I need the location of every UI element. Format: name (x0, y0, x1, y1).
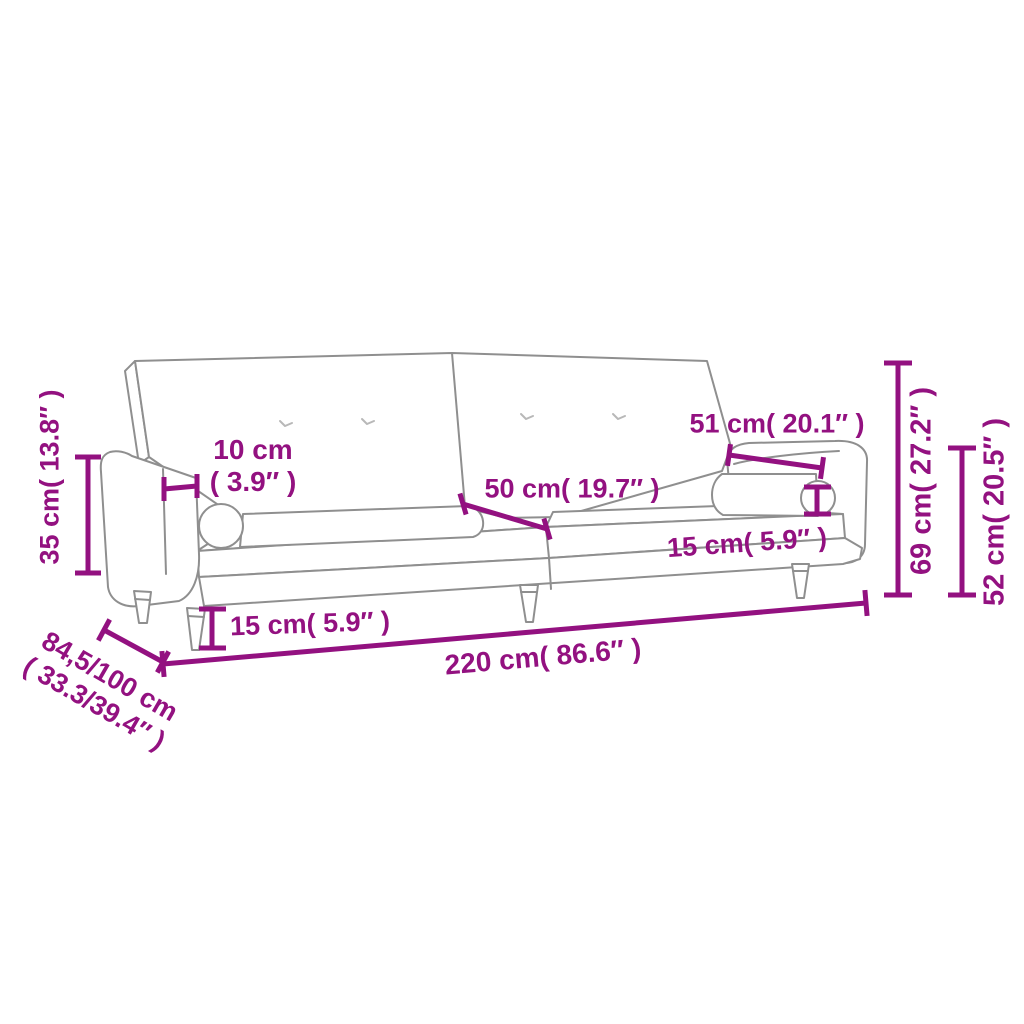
dim-line-35cm (75, 457, 101, 573)
dimension-label-35cm: 35 cm( 13.8″ ) (35, 389, 66, 564)
bolster-left-end-cap (199, 504, 243, 548)
dimension-label-50cm: 50 cm( 19.7″ ) (484, 474, 659, 505)
dimension-label-52cm: 52 cm( 20.5″ ) (978, 418, 1011, 606)
leg-seam (135, 599, 150, 600)
dim-line-52cm (948, 448, 976, 595)
dimension-label-15cm-leg: 15 cm( 5.9″ ) (230, 606, 391, 642)
sofa-line-drawing (0, 0, 1024, 1024)
product-dimension-diagram: 35 cm( 13.8″ ) 10 cm ( 3.9″ ) 50 cm( 19.… (0, 0, 1024, 1024)
dimension-label-10cm-inches: ( 3.9″ ) (210, 466, 297, 498)
leg (187, 608, 205, 650)
dimension-label-51cm: 51 cm( 20.1″ ) (689, 409, 864, 440)
dimension-label-69cm: 69 cm( 27.2″ ) (905, 387, 938, 575)
leg (792, 564, 809, 598)
armrest-left (101, 451, 199, 606)
dimension-label-10cm-value: 10 cm (210, 434, 297, 466)
leg (134, 591, 151, 623)
leg (520, 585, 538, 622)
leg-seam (188, 616, 204, 617)
dimension-label-10cm: 10 cm ( 3.9″ ) (210, 434, 297, 498)
